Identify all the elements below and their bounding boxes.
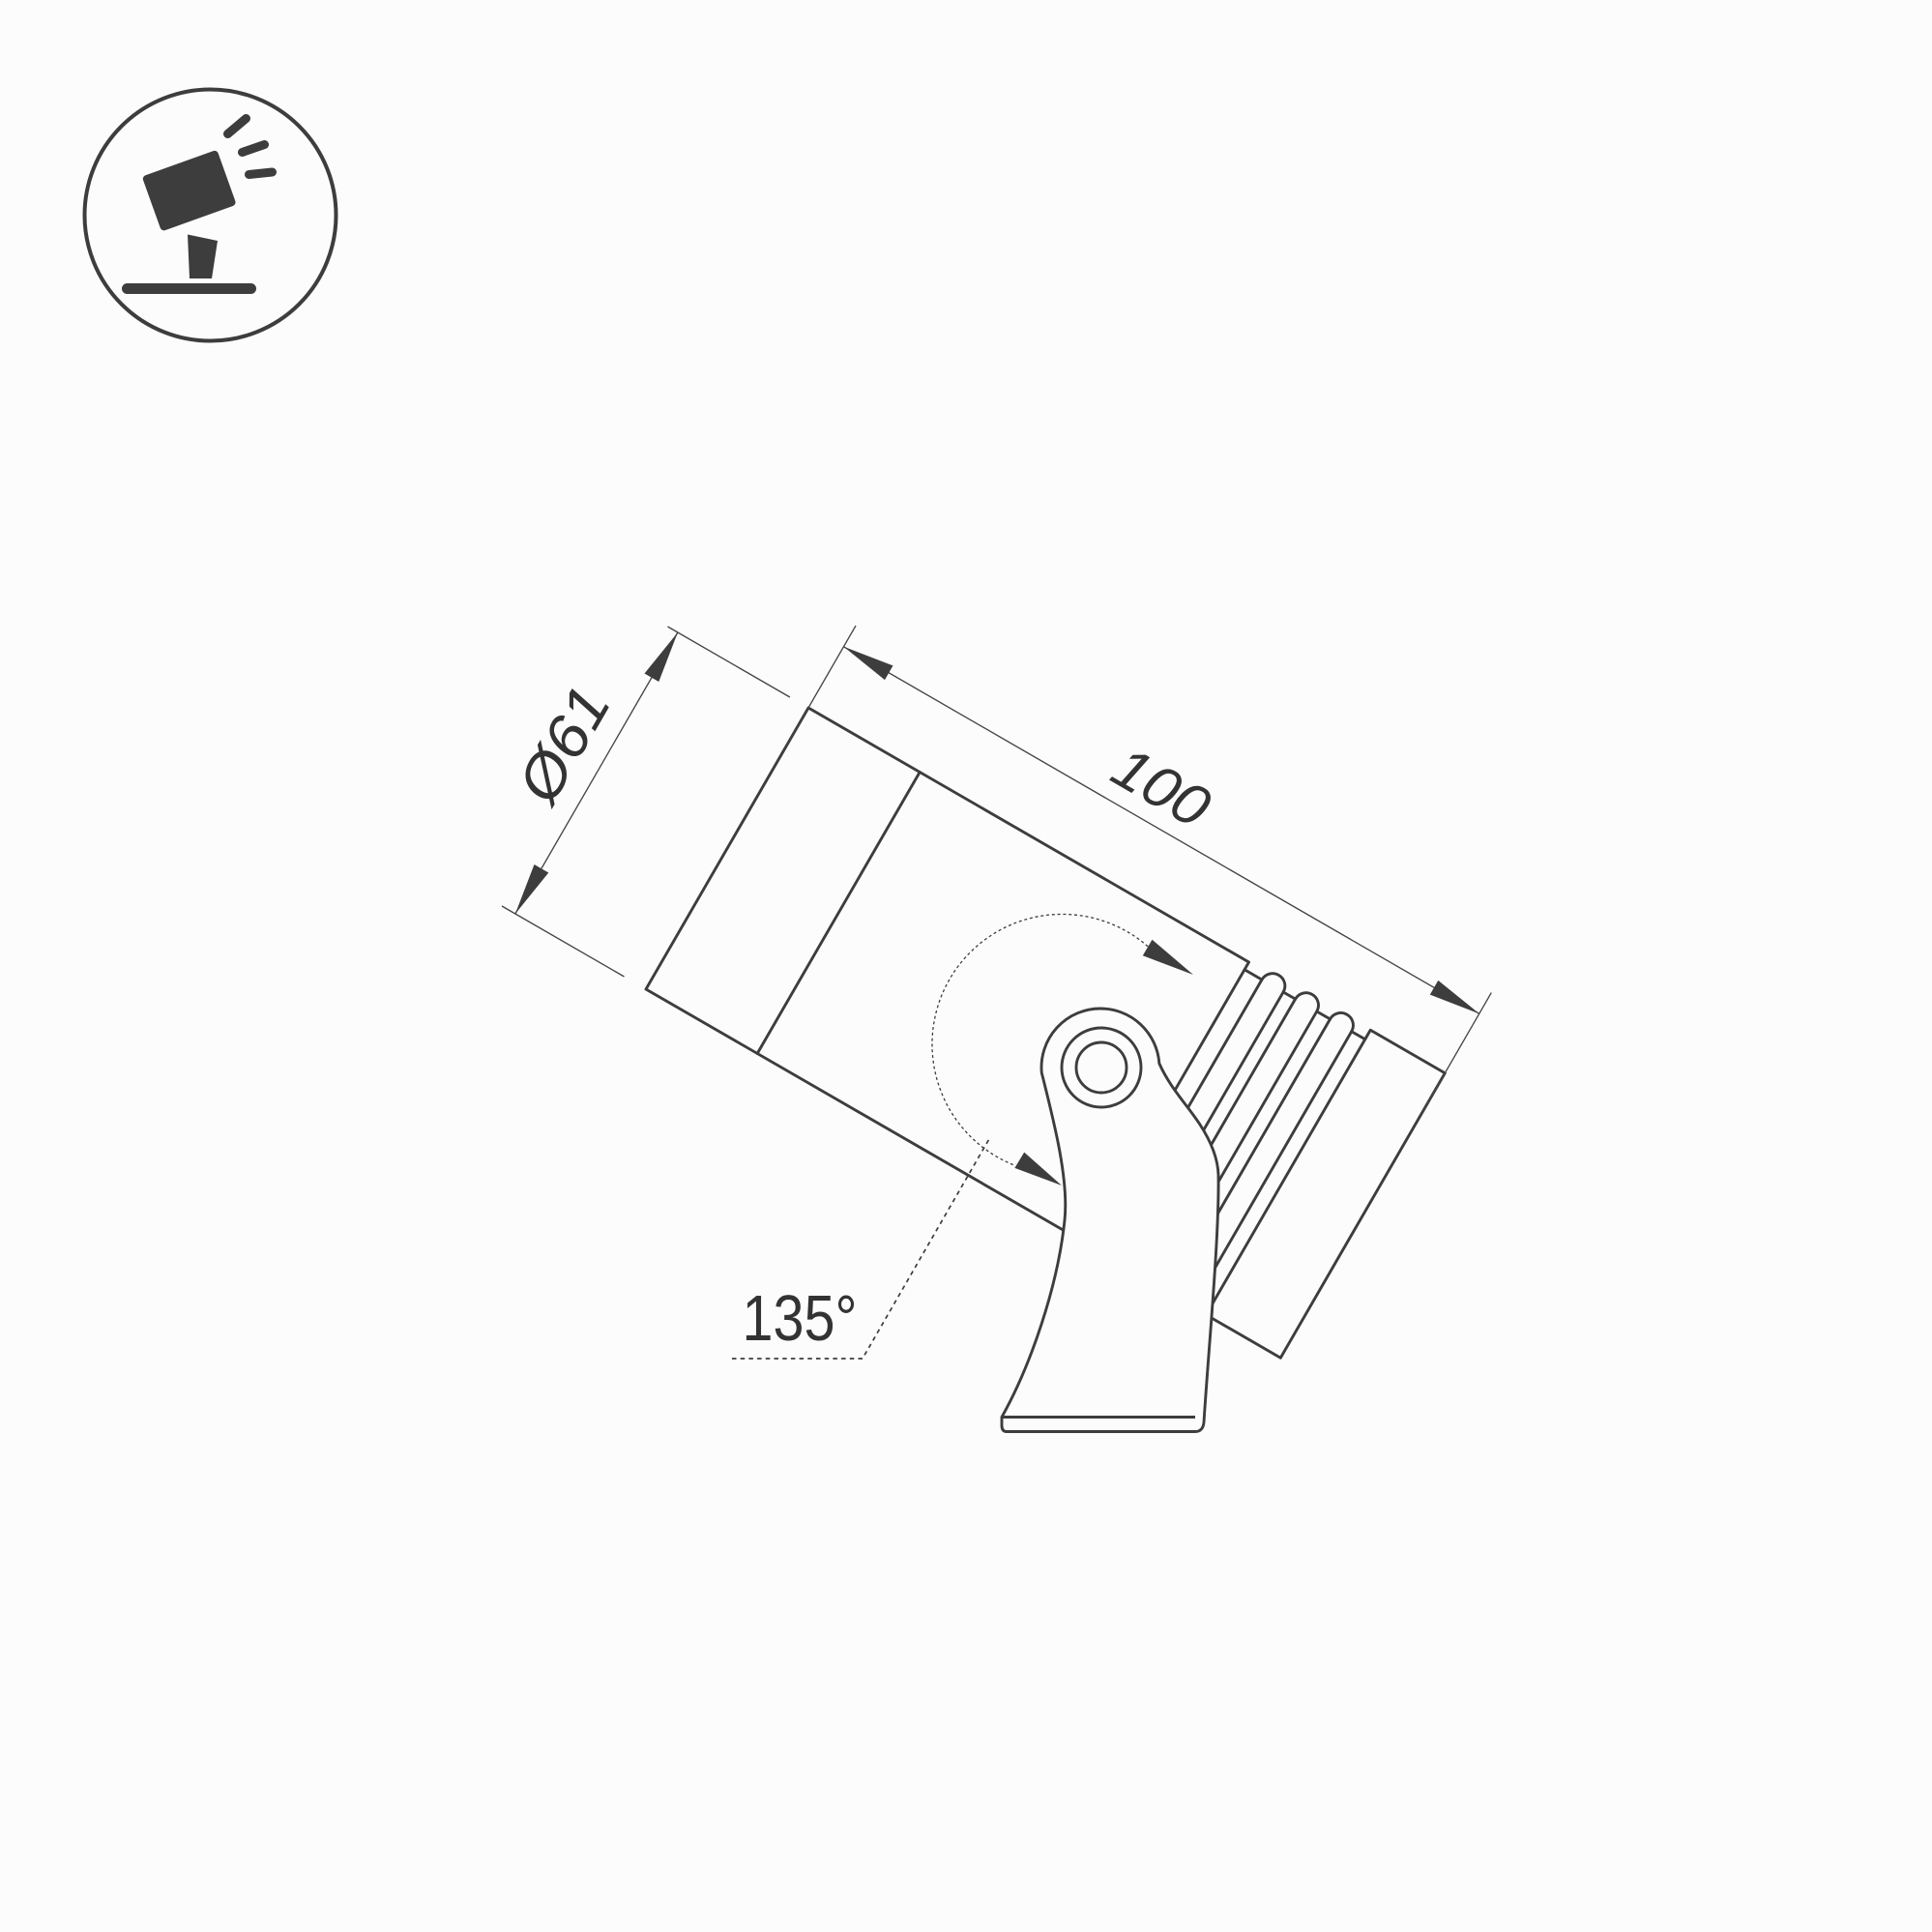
svg-text:135°: 135° xyxy=(743,1282,858,1355)
